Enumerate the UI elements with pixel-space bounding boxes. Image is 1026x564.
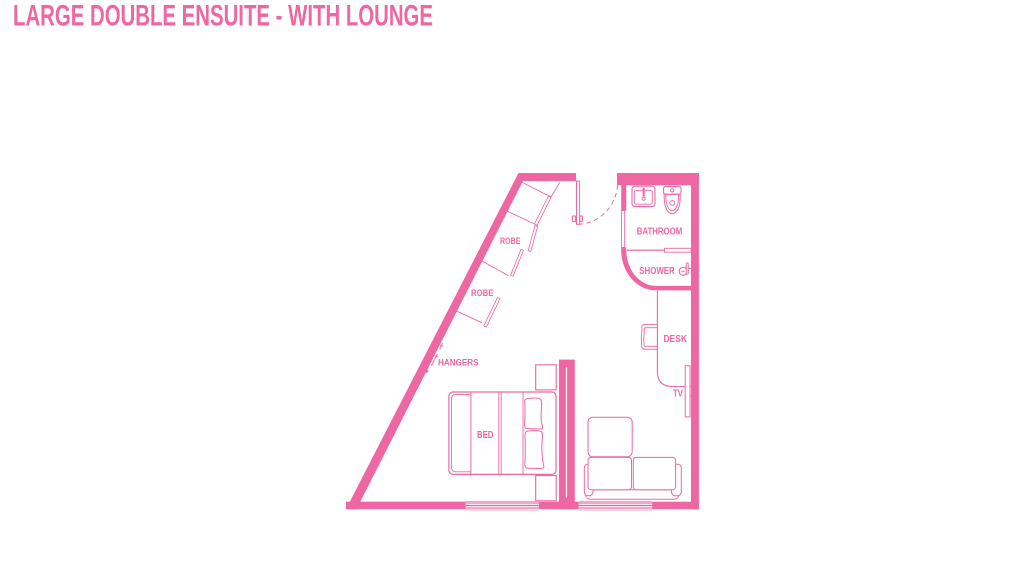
svg-text:ROBE: ROBE: [500, 236, 521, 247]
svg-text:ROBE: ROBE: [471, 288, 494, 299]
svg-text:HANGERS: HANGERS: [438, 357, 479, 368]
svg-text:BATHROOM: BATHROOM: [637, 227, 683, 238]
svg-text:SHOWER: SHOWER: [639, 266, 675, 277]
svg-text:LARGE DOUBLE ENSUITE - WITH LO: LARGE DOUBLE ENSUITE - WITH LOUNGE: [13, 0, 433, 32]
svg-text:TV: TV: [673, 388, 683, 399]
svg-text:BED: BED: [477, 430, 494, 441]
svg-text:DESK: DESK: [663, 334, 687, 345]
